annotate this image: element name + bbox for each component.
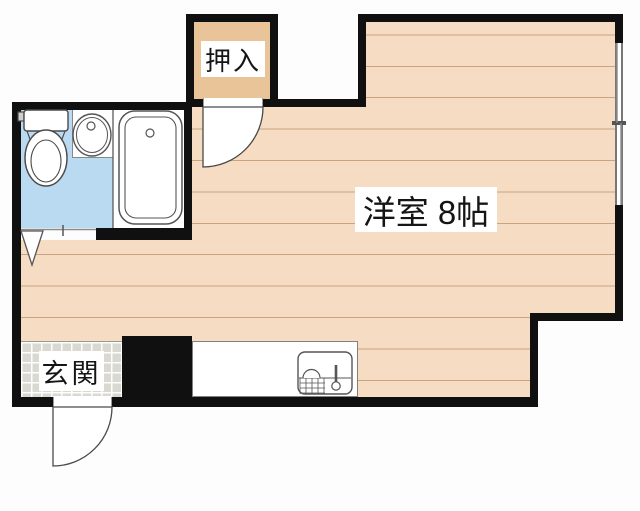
wall-step-horizontal [530,313,623,321]
wall-step-vertical [530,313,538,407]
closet-doorway [203,98,263,108]
wall-top-left-vertical [358,14,366,107]
main-room-label: 洋室 8帖 [355,187,497,232]
wall-bottom-main [112,397,538,407]
closet-label: 押入 [201,41,265,77]
wall-closet-to-room [270,99,366,107]
wall-bathroom-bottom [96,228,192,240]
wall-right-upper [615,14,623,43]
wall-bathroom-right [184,102,192,240]
entrance-label: 玄関 [39,351,104,391]
washbasin-vanity [72,110,113,158]
floorplan-canvas: 押入 洋室 8帖 玄関 [0,0,640,511]
entrance-doorway [53,396,112,408]
bathtub-section [113,110,184,228]
kitchen-counter [192,341,358,397]
window-sash-divider [612,121,626,125]
main-room-floor [0,0,640,511]
wall-left [12,102,21,407]
wall-top [358,14,623,22]
wall-right-lower [615,205,623,321]
wall-bathroom-top [12,102,192,110]
